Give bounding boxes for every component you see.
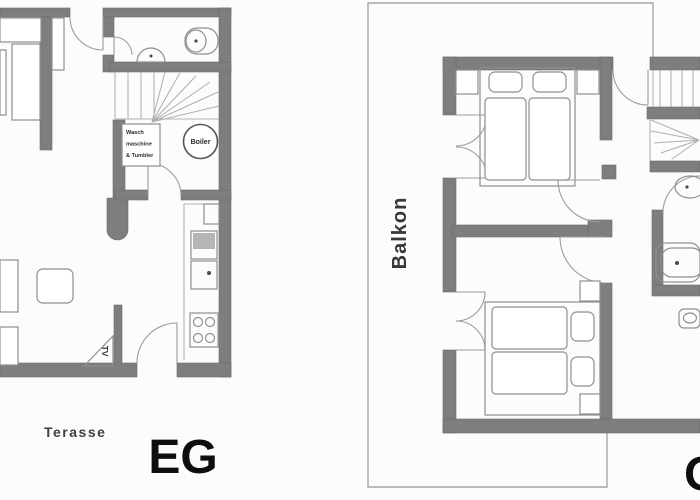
og-bed2-mattress: [492, 352, 567, 394]
floor-plan-eg: Wasch maschine & Tumbler Boiler: [0, 8, 231, 484]
laundry-label-line3: & Tumbler: [126, 153, 154, 159]
laundry-label-line1: Wasch: [126, 130, 144, 136]
eg-laundry-box: Wasch maschine & Tumbler: [122, 124, 160, 166]
og-bed2-nightstand-top: [580, 281, 600, 301]
eg-wall-stub-rounded: [107, 198, 128, 240]
eg-stove-burner: [206, 318, 215, 327]
og-small-basin-bowl: [684, 313, 697, 323]
eg-stairs: [115, 72, 219, 122]
eg-bed-headboard: [0, 18, 41, 42]
tv-label: TV: [100, 346, 110, 357]
terrace-label: Terasse: [44, 424, 106, 440]
floor-plan-og: Balkon: [368, 3, 700, 500]
eg-wardrobe: [52, 18, 64, 70]
eg-stove-burner: [194, 318, 203, 327]
og-balcony-french-door-bottom-leaf1: [456, 292, 485, 321]
og-bed2-mattress: [492, 307, 567, 349]
og-bed2-pillow: [571, 357, 594, 386]
og-bed1-pillow: [489, 72, 522, 92]
eg-stove-burner: [194, 334, 203, 343]
og-balcony-french-door-top-leaf2: [456, 147, 487, 178]
eg-kitchen-cabinet: [204, 204, 219, 224]
og-bedroom2-door: [560, 237, 606, 283]
floor-label-og: OG: [684, 448, 700, 500]
eg-kitchen-sink-unit: [191, 261, 217, 289]
og-bathroom-door: [663, 176, 700, 213]
eg-table: [37, 269, 73, 303]
eg-hall-door: [70, 17, 103, 50]
og-bed2-pillow: [571, 312, 594, 341]
og-bed1-pillow: [533, 72, 566, 92]
eg-sofa-1: [0, 260, 18, 312]
eg-bathroom: [114, 28, 218, 62]
floorplan-canvas: Wasch maschine & Tumbler Boiler: [0, 0, 700, 500]
eg-stove: [190, 313, 218, 347]
eg-living-room: TV: [0, 260, 113, 366]
eg-boiler: Boiler: [184, 125, 218, 159]
eg-stove-burner: [206, 334, 215, 343]
balcony-label: Balkon: [389, 197, 411, 270]
eg-utility-door: [148, 163, 181, 196]
og-balcony-french-door-top-leaf1: [456, 115, 487, 146]
eg-bed: [0, 18, 41, 120]
og-balcony-door-landing: [613, 70, 648, 105]
laundry-label-line2: maschine: [126, 142, 152, 148]
og-bed1-nightstand-right: [577, 70, 599, 94]
og-balcony-french-door-bottom-leaf2: [456, 321, 485, 350]
og-bathtub-inner: [661, 248, 700, 277]
floorplan-drawing: Wasch maschine & Tumbler Boiler: [0, 0, 700, 500]
og-bed2-nightstand-bottom: [580, 394, 600, 414]
og-bedroom1-bed: [456, 68, 599, 186]
og-bed1-nightstand-left: [456, 70, 478, 94]
boiler-label: Boiler: [191, 139, 211, 146]
eg-kitchen: [184, 204, 219, 360]
floor-label-eg: EG: [148, 431, 217, 484]
og-bedroom2-bed: [485, 281, 600, 415]
eg-bathroom-door: [114, 37, 132, 55]
eg-sofa-2: [0, 327, 18, 365]
og-bed1-mattress: [485, 98, 526, 180]
og-bed1-mattress: [529, 98, 570, 180]
eg-bed-mattress: [12, 44, 40, 120]
eg-entrance-door: [137, 323, 177, 363]
eg-bed-mattress-left: [0, 50, 6, 115]
